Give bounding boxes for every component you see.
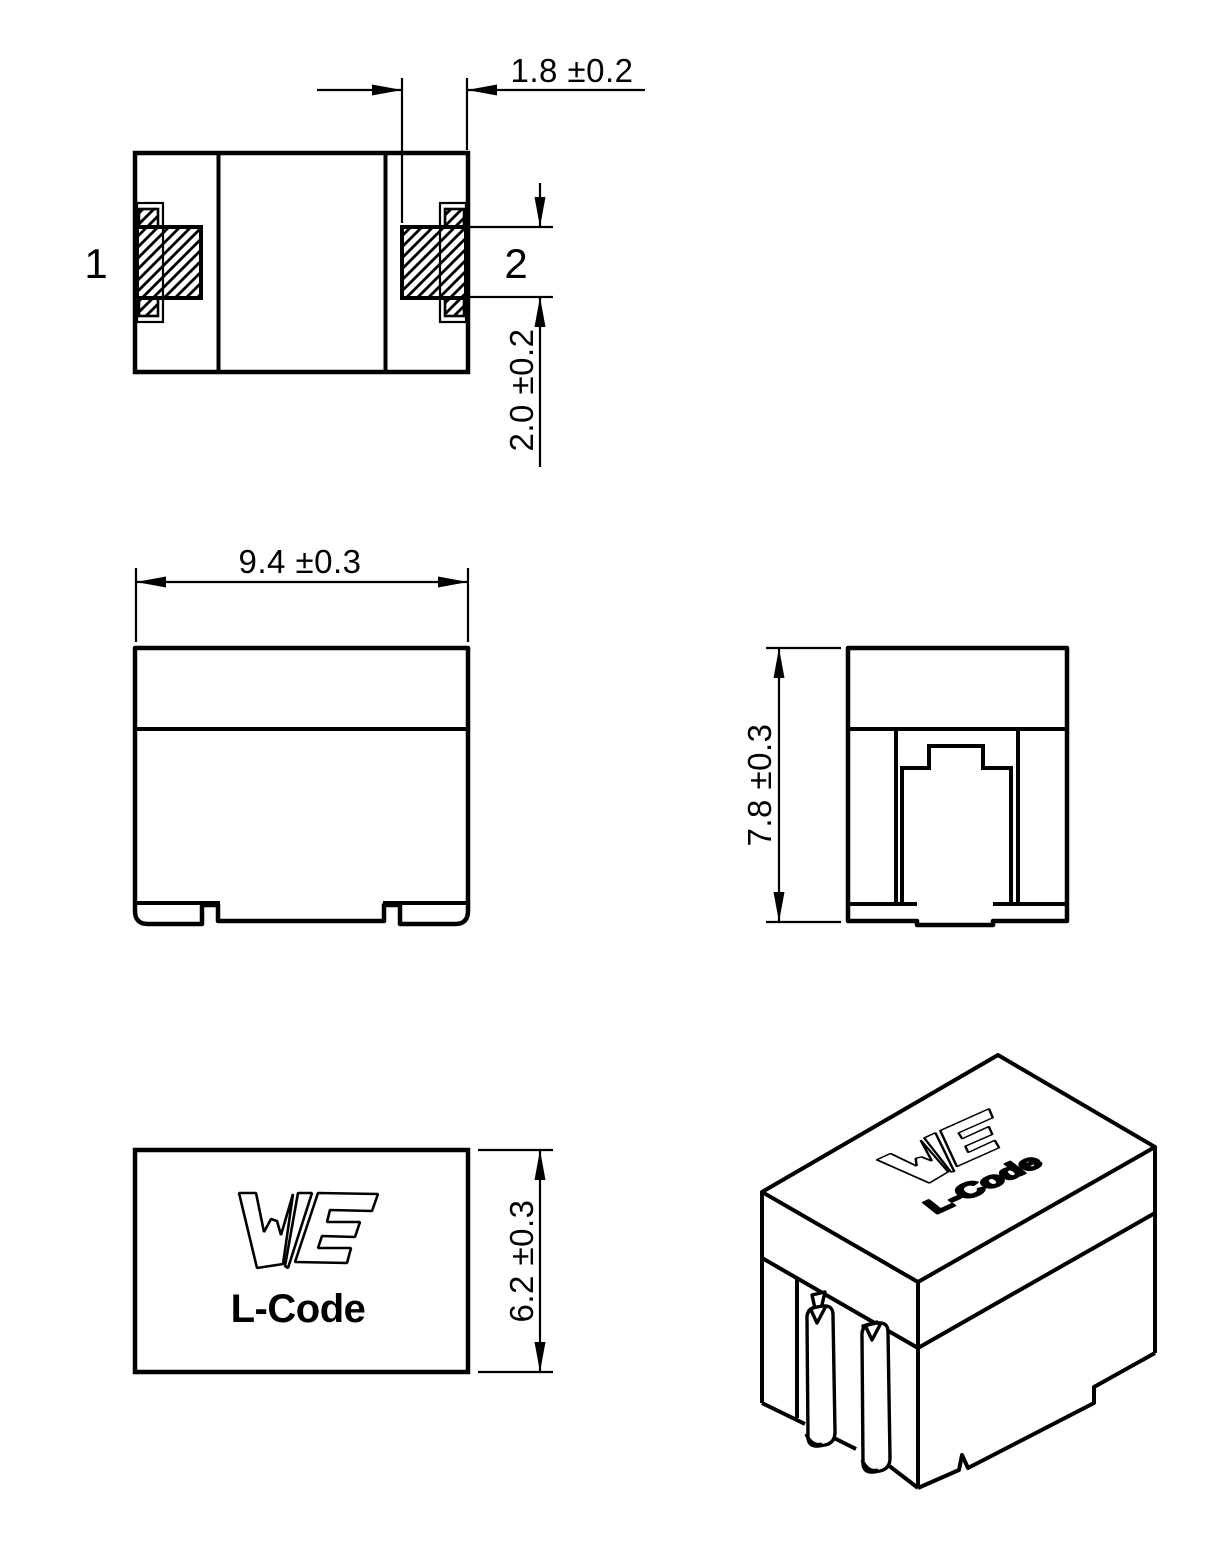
iso-bottom-edge-front [888, 1465, 918, 1488]
iso-bottom-edge-right [918, 1353, 1155, 1488]
pad-1-top-bar [139, 209, 158, 227]
side-view-body-outline [848, 648, 1067, 925]
pad-1 [137, 203, 201, 322]
top-view: 1 2 1.8 ±0.2 2.0 ±0.2 [84, 52, 645, 467]
arrowhead [136, 577, 166, 588]
dim-body-height: 7.8 ±0.3 [741, 648, 841, 922]
side-view-winding-profile [902, 746, 1011, 904]
arrowhead [774, 648, 785, 678]
side-view: 7.8 ±0.3 [741, 648, 1067, 925]
dim-body-depth-label: 6.2 ±0.3 [503, 1199, 540, 1322]
dim-terminal-height-label: 2.0 ±0.2 [503, 328, 540, 451]
pad-2 [402, 203, 466, 322]
dim-body-width: 9.4 ±0.3 [136, 543, 468, 642]
arrowhead [372, 85, 402, 96]
isometric-view [762, 1055, 1155, 1488]
dim-body-width-label: 9.4 ±0.3 [238, 543, 361, 580]
iso-bottom-edge-mid [832, 1437, 856, 1449]
pad-2-bottom-bar [445, 298, 464, 316]
iso-left-flange-line [762, 1258, 918, 1348]
dim-terminal-width: 1.8 ±0.2 [317, 52, 645, 223]
dim-terminal-height: 2.0 ±0.2 [470, 183, 553, 467]
marking-view: 6.2 ±0.3 [135, 1150, 553, 1372]
pad-1-body [137, 227, 201, 298]
arrowhead [535, 1150, 546, 1180]
pin2-label: 2 [504, 240, 527, 287]
pad-2-body [402, 227, 466, 298]
dim-body-depth: 6.2 ±0.3 [478, 1150, 553, 1372]
clip-2 [862, 1323, 890, 1472]
arrowhead [774, 892, 785, 922]
technical-drawing: L-Code 1 2 1.8 [0, 0, 1229, 1558]
pad-2-top-bar [445, 209, 464, 227]
arrowhead [467, 85, 497, 96]
clip-1 [807, 1306, 835, 1446]
dim-terminal-width-label: 1.8 ±0.2 [510, 52, 633, 89]
technical-drawing-page: L-Code 1 2 1.8 [0, 0, 1229, 1558]
arrowhead [535, 297, 546, 327]
arrowhead [535, 1342, 546, 1372]
pad-1-bottom-bar [139, 298, 158, 316]
arrowhead [535, 197, 546, 227]
dim-body-height-label: 7.8 ±0.3 [741, 723, 778, 846]
front-view-body-outline [135, 648, 468, 924]
pin1-label: 1 [84, 240, 107, 287]
arrowhead [438, 577, 468, 588]
front-view: 9.4 ±0.3 [135, 543, 468, 924]
we-logo [231, 1193, 378, 1331]
